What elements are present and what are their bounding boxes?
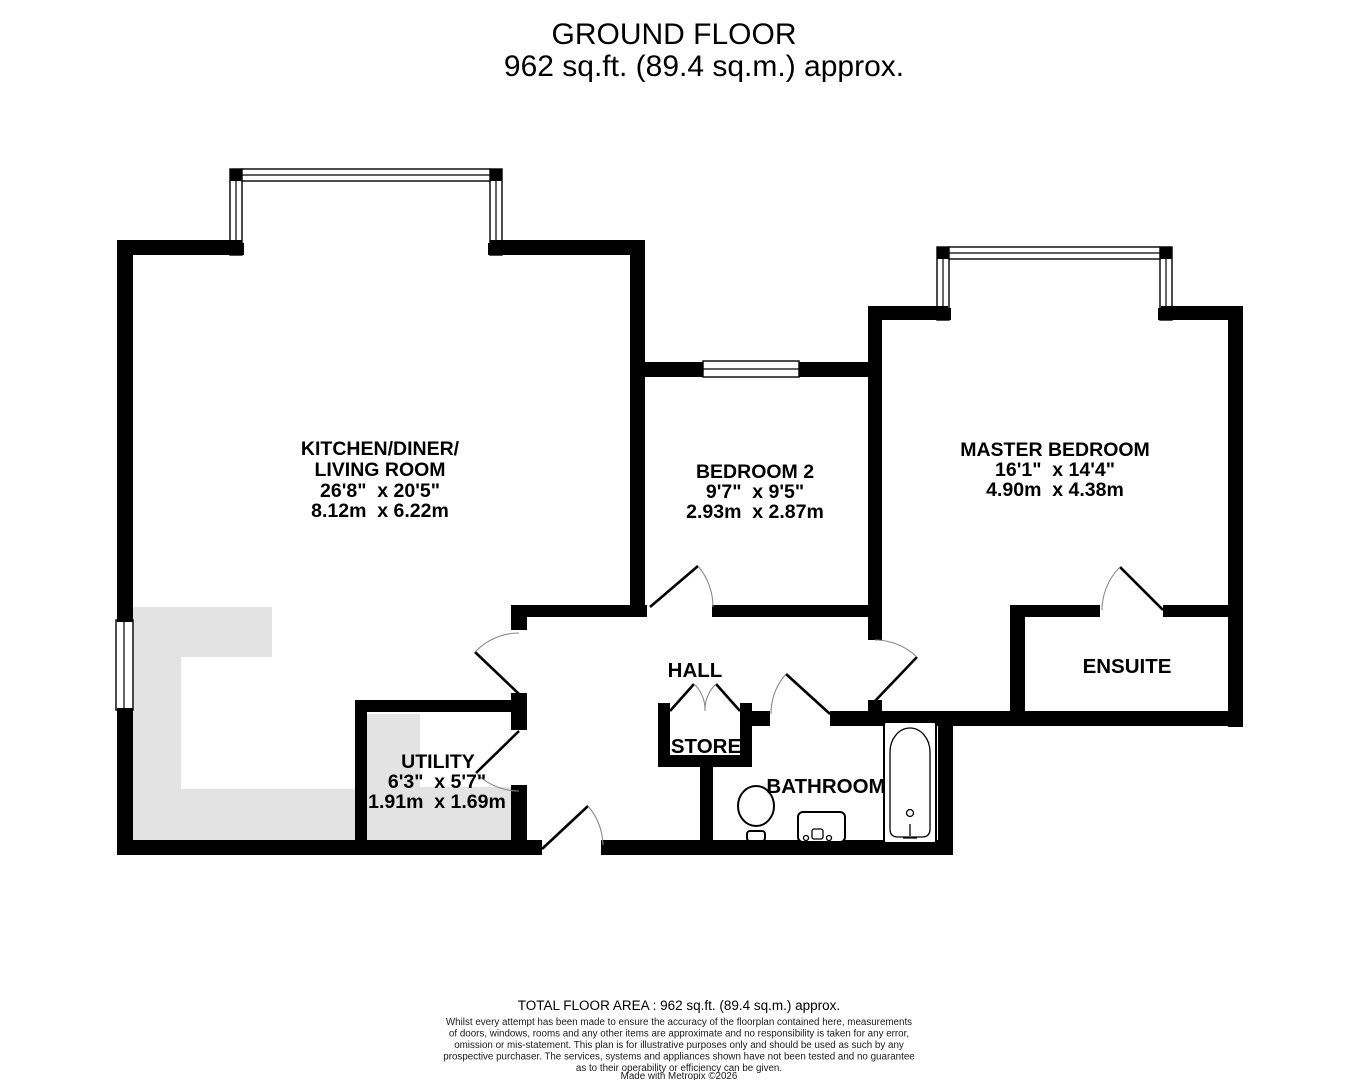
- disclaimer-line-3: omission or mis-statement. This plan is …: [454, 1040, 904, 1051]
- bedroom2-dims-metric: 2.93m x 2.87m: [686, 501, 824, 523]
- bay-window-master: [937, 247, 1172, 320]
- total-floor-area: TOTAL FLOOR AREA : 962 sq.ft. (89.4 sq.m…: [518, 998, 840, 1013]
- kitchen-label-line1: KITCHEN/DINER/: [301, 438, 460, 460]
- kitchen-dims-imperial: 26'8" x 20'5": [320, 480, 440, 502]
- utility-dims-metric: 1.91m x 1.69m: [368, 791, 506, 813]
- door-kitchen: [475, 633, 519, 694]
- bedroom2-dims-imperial: 9'7" x 9'5": [706, 481, 804, 503]
- floorplan-canvas: GROUND FLOOR 962 sq.ft. (89.4 sq.m.) app…: [0, 0, 1359, 1080]
- kitchen-dims-metric: 8.12m x 6.22m: [311, 500, 449, 522]
- hall-label: HALL: [668, 659, 723, 682]
- metropix-credit: Made with Metropix ©2026: [621, 1071, 738, 1080]
- kitchen-counters: [133, 607, 355, 840]
- page-title: GROUND FLOOR: [551, 18, 796, 51]
- door-ensuite: [1102, 567, 1163, 610]
- room-labels: KITCHEN/DINER/ LIVING ROOM 26'8" x 20'5"…: [301, 438, 1172, 813]
- bedroom2-label: BEDROOM 2: [696, 461, 814, 483]
- disclaimer-line-2: of doors, windows, rooms and any other i…: [449, 1029, 909, 1040]
- window-bedroom2: [703, 361, 799, 377]
- disclaimer-line-1: Whilst every attempt has been made to en…: [446, 1017, 912, 1028]
- utility-label: UTILITY: [401, 751, 475, 773]
- store-label: STORE: [671, 735, 741, 758]
- footer: TOTAL FLOOR AREA : 962 sq.ft. (89.4 sq.m…: [443, 998, 915, 1080]
- disclaimer-line-4: prospective purchaser. The services, sys…: [443, 1052, 915, 1063]
- bathtub-icon: [884, 722, 936, 843]
- master-bedroom-dims-metric: 4.90m x 4.38m: [986, 479, 1124, 501]
- master-bedroom-dims-imperial: 16'1" x 14'4": [995, 459, 1115, 481]
- window-kitchen-left: [116, 620, 133, 710]
- sink-icon: [798, 812, 845, 842]
- page-subtitle: 962 sq.ft. (89.4 sq.m.) approx.: [504, 50, 904, 83]
- bathroom-label: BATHROOM: [766, 775, 885, 798]
- door-master-bedroom: [875, 640, 917, 701]
- master-bedroom-label: MASTER BEDROOM: [960, 439, 1150, 461]
- bay-window-kitchen: [230, 169, 502, 255]
- door-bathroom: [771, 674, 830, 714]
- door-bedroom2: [650, 566, 713, 607]
- door-front-entrance: [542, 806, 603, 849]
- ensuite-label: ENSUITE: [1083, 655, 1172, 678]
- kitchen-label-line2: LIVING ROOM: [314, 459, 445, 481]
- utility-dims-imperial: 6'3" x 5'7": [388, 771, 486, 793]
- door-store-double: [670, 684, 740, 711]
